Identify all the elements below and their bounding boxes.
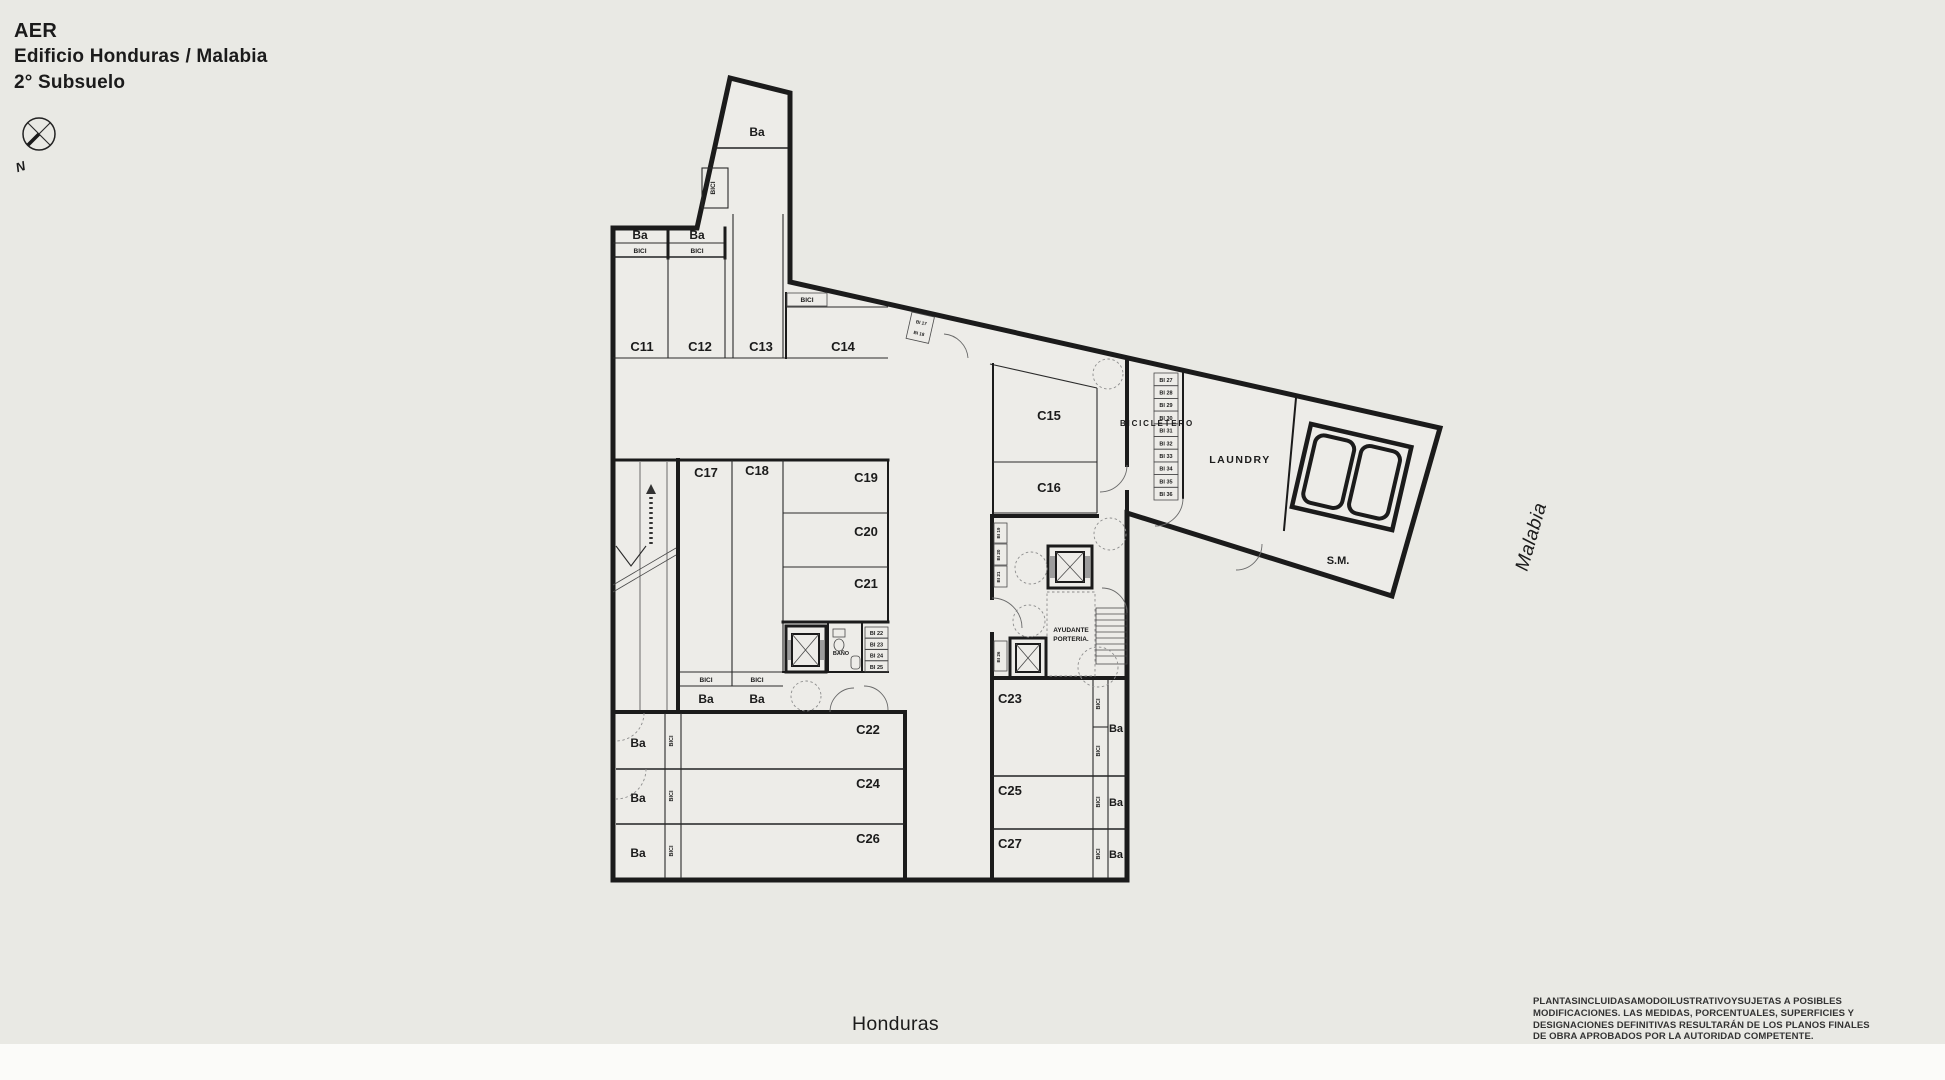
room-label-ba: Ba bbox=[749, 692, 765, 706]
bike-spot-bi27: BI 27 bbox=[1159, 378, 1172, 384]
elevator-2-icon bbox=[1010, 638, 1046, 678]
room-label-ba: Ba bbox=[630, 736, 646, 750]
bike-spot-bi19: BI 19 bbox=[996, 527, 1001, 538]
stall-label-c12: C12 bbox=[688, 339, 712, 354]
room-label-ba: Ba bbox=[698, 692, 714, 706]
disclaimer-line: DESIGNACIONES DEFINITIVAS RESULTARÁN DE … bbox=[1533, 1020, 1913, 1032]
bici-label: BICI bbox=[634, 248, 647, 255]
bici-label: BICI bbox=[691, 248, 704, 255]
room-label-ba: Ba bbox=[689, 228, 705, 242]
bike-spot-bi21: BI 21 bbox=[996, 571, 1001, 582]
stall-label-c23: C23 bbox=[998, 691, 1022, 706]
banio-label: BAÑO bbox=[833, 650, 850, 657]
stall-label-c21: C21 bbox=[854, 576, 878, 591]
porteria-label: PORTERIA. bbox=[1053, 636, 1089, 643]
ayudante-label: AYUDANTE bbox=[1053, 627, 1089, 634]
bike-spot-bi36: BI 36 bbox=[1159, 492, 1172, 498]
stall-label-c18: C18 bbox=[745, 463, 769, 478]
room-label-ba: Ba bbox=[1109, 797, 1124, 809]
disclaimer-line: DE OBRA APROBADOS POR LA AUTORIDAD COMPE… bbox=[1533, 1031, 1913, 1043]
bike-spot-bi32: BI 32 bbox=[1159, 441, 1172, 447]
stall-label-c27: C27 bbox=[998, 836, 1022, 851]
room-label-ba: Ba bbox=[1109, 849, 1124, 861]
room-label-ba: Ba bbox=[749, 125, 765, 139]
bici-label: BICI bbox=[669, 735, 675, 746]
bike-spot-bi25: BI 25 bbox=[870, 665, 883, 671]
laundry-label: LAUNDRY bbox=[1209, 454, 1270, 466]
bici-label: BICI bbox=[751, 677, 764, 684]
floorplan-page: { "header": { "brand": "AER", "building"… bbox=[0, 0, 1945, 1080]
bici-label: BICI bbox=[1096, 698, 1102, 709]
bike-spot-bi34: BI 34 bbox=[1159, 467, 1173, 473]
bike-spot-bi23: BI 23 bbox=[870, 642, 883, 648]
stall-label-c19: C19 bbox=[854, 470, 878, 485]
bike-spot-bi20: BI 20 bbox=[996, 549, 1001, 560]
stall-label-c13: C13 bbox=[749, 339, 773, 354]
bike-spot-bi33: BI 33 bbox=[1159, 454, 1172, 460]
stall-label-c20: C20 bbox=[854, 524, 878, 539]
stall-label-c22: C22 bbox=[856, 722, 880, 737]
bike-spot-bi28: BI 28 bbox=[1159, 391, 1172, 397]
stall-label-c11: C11 bbox=[630, 339, 653, 354]
bike-spot-bi26: BI 26 bbox=[996, 651, 1001, 662]
stall-label-c15: C15 bbox=[1037, 408, 1061, 423]
stall-label-c14: C14 bbox=[831, 339, 856, 354]
bici-label: BICI bbox=[801, 297, 814, 304]
bici-label: BICI bbox=[669, 790, 675, 801]
street-label-honduras: Honduras bbox=[852, 1013, 939, 1036]
bici-label: BICI bbox=[669, 845, 675, 856]
legal-disclaimer: PLANTASINCLUIDASAMODOILUSTRATIVOYSUJETAS… bbox=[1533, 996, 1913, 1043]
stall-label-c17: C17 bbox=[694, 465, 718, 480]
bici-label: BICI bbox=[710, 181, 717, 194]
sala-maquinas-label: S.M. bbox=[1327, 555, 1350, 567]
room-label-ba: Ba bbox=[1109, 723, 1124, 735]
bici-label: BICI bbox=[700, 677, 713, 684]
bike-spot-bi24: BI 24 bbox=[870, 654, 884, 660]
floor-plan: Ba BICI Ba Ba BICI BICI BICI C11 C12 C13… bbox=[0, 0, 1945, 1080]
disclaimer-line: MODIFICACIONES. LAS MEDIDAS, PORCENTUALE… bbox=[1533, 1008, 1913, 1020]
bike-spot-bi22: BI 22 bbox=[870, 631, 883, 637]
room-label-ba: Ba bbox=[630, 791, 646, 805]
building-outline bbox=[613, 78, 1440, 880]
bici-label: BICI bbox=[1096, 745, 1102, 756]
bike-spot-bi31: BI 31 bbox=[1159, 429, 1172, 435]
stall-label-c16: C16 bbox=[1037, 480, 1061, 495]
bici-label: BICI bbox=[1096, 848, 1102, 859]
stall-label-c24: C24 bbox=[856, 776, 881, 791]
stall-label-c25: C25 bbox=[998, 783, 1022, 798]
stall-label-c26: C26 bbox=[856, 831, 880, 846]
room-label-ba: Ba bbox=[632, 228, 648, 242]
bike-spot-bi29: BI 29 bbox=[1159, 403, 1172, 409]
room-label-ba: Ba bbox=[630, 846, 646, 860]
disclaimer-line: PLANTASINCLUIDASAMODOILUSTRATIVOYSUJETAS… bbox=[1533, 996, 1913, 1008]
bici-label: BICI bbox=[1096, 796, 1102, 807]
bike-spot-bi35: BI 35 bbox=[1159, 479, 1172, 485]
